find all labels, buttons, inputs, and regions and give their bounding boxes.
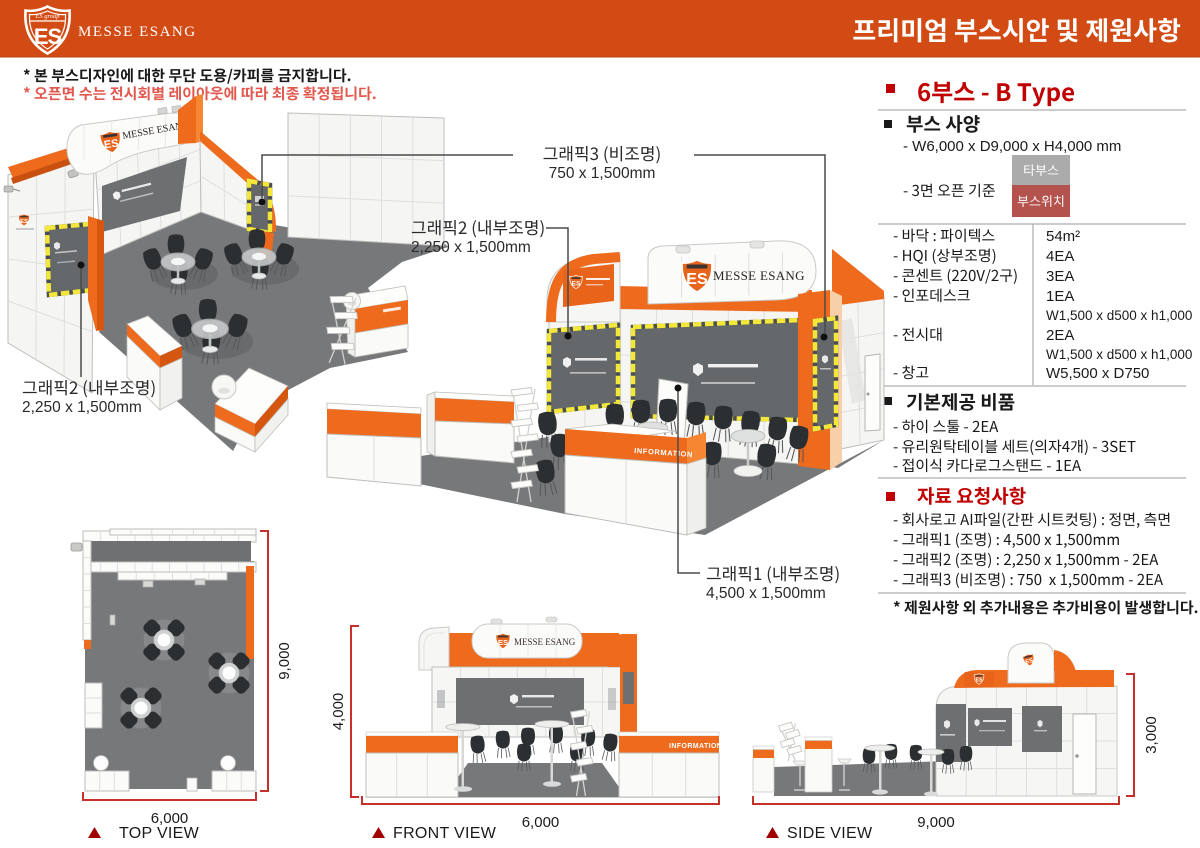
svg-text:54m²: 54m² <box>1046 228 1080 245</box>
svg-text:3EA: 3EA <box>1046 268 1074 285</box>
svg-text:1EA: 1EA <box>1046 288 1074 305</box>
svg-text:W1,500 x d500 x h1,000: W1,500 x d500 x h1,000 <box>1046 347 1192 362</box>
svg-text:2EA: 2EA <box>1046 327 1074 344</box>
svg-text:ES: ES <box>686 270 708 288</box>
svg-text:ES: ES <box>20 219 28 225</box>
svg-text:- W6,000 x D9,000 x H4,000 mm: - W6,000 x D9,000 x H4,000 mm <box>903 138 1121 155</box>
svg-text:9,000: 9,000 <box>917 814 955 831</box>
svg-text:6,000: 6,000 <box>522 814 560 831</box>
svg-text:750 x 1,500mm: 750 x 1,500mm <box>549 165 656 182</box>
svg-text:MESSE ESANG: MESSE ESANG <box>78 24 197 40</box>
svg-text:INFORMATION: INFORMATION <box>669 743 722 750</box>
svg-text:SIDE VIEW: SIDE VIEW <box>787 825 873 842</box>
svg-text:ES: ES <box>34 24 62 49</box>
svg-text:3,000: 3,000 <box>1143 716 1160 754</box>
svg-text:TOP VIEW: TOP VIEW <box>119 825 200 842</box>
svg-text:MESSE ESANG: MESSE ESANG <box>713 268 805 283</box>
svg-text:MESSE ESANG: MESSE ESANG <box>514 637 576 647</box>
svg-text:W1,500 x d500 x h1,000: W1,500 x d500 x h1,000 <box>1046 308 1192 323</box>
svg-text:9,000: 9,000 <box>276 642 293 680</box>
svg-text:2,250 x 1,500mm: 2,250 x 1,500mm <box>22 399 142 416</box>
svg-text:FRONT VIEW: FRONT VIEW <box>393 825 497 842</box>
svg-text:ES: ES <box>498 638 508 647</box>
svg-text:4,000: 4,000 <box>330 693 347 731</box>
svg-text:ES: ES <box>103 137 119 151</box>
svg-text:ES: ES <box>975 678 983 684</box>
svg-text:ES: ES <box>572 280 581 287</box>
svg-text:W5,500 x D750: W5,500 x D750 <box>1046 365 1149 382</box>
svg-text:2,250 x 1,500mm: 2,250 x 1,500mm <box>411 239 531 256</box>
svg-text:4,500 x 1,500mm: 4,500 x 1,500mm <box>706 585 826 602</box>
svg-text:4EA: 4EA <box>1046 248 1074 265</box>
svg-text:ES group: ES group <box>34 13 60 20</box>
